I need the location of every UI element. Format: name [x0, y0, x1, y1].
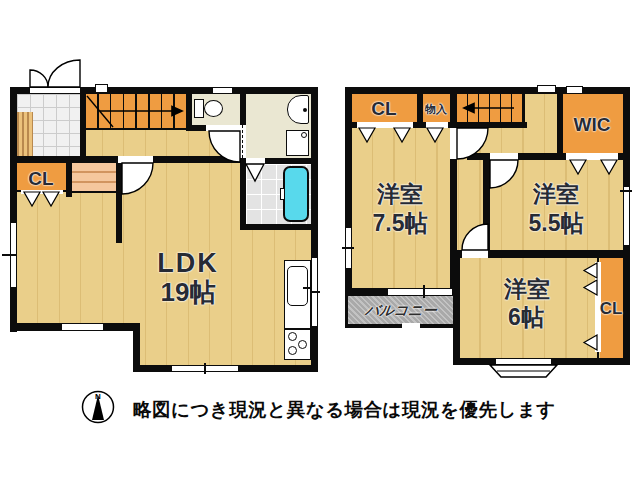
kitchen-sink — [287, 266, 308, 306]
door-opening — [246, 158, 265, 164]
stairs-edge-line — [86, 128, 186, 130]
wall-segment — [450, 94, 457, 296]
window-tick — [342, 247, 354, 249]
sliding-door-line — [242, 125, 243, 158]
stove-burner — [288, 346, 297, 355]
bay-window-opening — [496, 358, 551, 365]
ldk-room-name: LDK — [157, 250, 219, 277]
wall-segment — [557, 94, 563, 160]
compass-north-icon: N — [83, 392, 114, 423]
door-opening — [206, 125, 240, 131]
entrance-double-door — [30, 60, 80, 87]
wall-segment — [240, 224, 318, 230]
wall-segment — [417, 94, 423, 122]
kitchen-faucet — [303, 287, 312, 289]
disclaimer-text: 略図につき現況と異なる場合は現況を優先します — [133, 397, 556, 422]
closet-label: CL — [28, 169, 53, 188]
wall-segment — [17, 156, 118, 163]
window-tick — [620, 190, 632, 192]
window-symbol — [537, 85, 556, 93]
window-tick — [204, 363, 206, 374]
washer-drain — [301, 132, 307, 138]
staircase-floor1 — [86, 94, 186, 128]
storage-step-area — [72, 163, 116, 193]
closet-opening — [21, 190, 63, 194]
window-tick — [423, 285, 425, 298]
wall-segment — [483, 160, 490, 257]
room-b-name: 洋室 — [533, 183, 579, 206]
wall-segment — [153, 156, 240, 163]
toilet-tank — [194, 99, 204, 118]
room-a-size: 7.5帖 — [373, 212, 428, 235]
window-symbol — [566, 86, 583, 94]
room-a-name: 洋室 — [377, 183, 423, 206]
wic-label: WIC — [574, 115, 611, 134]
ldk-room-size: 19帖 — [161, 279, 216, 305]
wall-segment — [66, 163, 72, 197]
door-opening — [118, 156, 153, 163]
genkan-step-board — [17, 112, 33, 156]
closet-opening — [566, 153, 618, 160]
entrance-opening — [30, 87, 80, 94]
door-opening — [450, 128, 457, 159]
closet-side-label: CL — [600, 300, 623, 317]
storage-label: 物入 — [425, 104, 447, 115]
balcony-rail-gap — [402, 323, 420, 328]
wall-segment — [311, 94, 318, 372]
floor2-notch-mask — [340, 328, 453, 378]
room-b-size: 5.5帖 — [529, 212, 584, 235]
door-opening — [490, 153, 518, 160]
window-symbol — [388, 288, 452, 296]
wall-segment — [345, 87, 630, 94]
closet-opening — [426, 122, 448, 128]
door-opening — [462, 250, 488, 258]
wall-segment — [10, 94, 17, 332]
balcony-rail — [345, 324, 457, 328]
bathtub-handle — [280, 188, 285, 200]
floorplan-canvas: CL LDK 19帖 — [0, 0, 640, 480]
staircase-floor2 — [457, 94, 523, 122]
room-c-name: 洋室 — [504, 278, 550, 301]
room-c-size: 6帖 — [508, 306, 544, 329]
window-symbol — [623, 187, 630, 245]
toilet-bowl — [204, 100, 223, 117]
window-symbol — [95, 84, 108, 93]
compass-n-label: N — [95, 392, 101, 401]
window-tick — [2, 254, 16, 256]
sliding-door-opening — [240, 125, 246, 158]
bathtub — [283, 166, 309, 222]
window-symbol — [213, 87, 232, 94]
stairs-edge-line — [523, 94, 525, 122]
closet-opening — [357, 122, 413, 128]
stove-burner — [298, 340, 307, 349]
closet-label: CL — [371, 99, 396, 118]
floor1-notch-mask — [0, 331, 135, 379]
window-symbol — [62, 323, 103, 331]
stove-burner — [288, 332, 297, 341]
wall-segment — [116, 163, 122, 243]
bay-window — [490, 365, 557, 377]
basin-drain — [303, 108, 307, 112]
balcony-label: バルコニー — [364, 303, 437, 317]
